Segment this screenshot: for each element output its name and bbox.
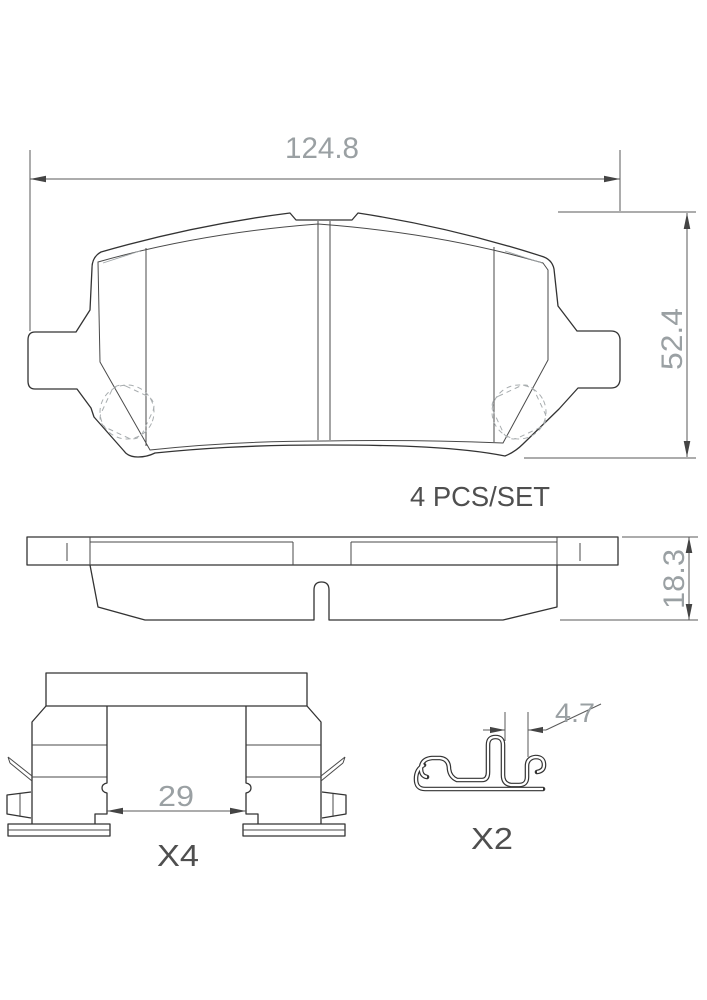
spring-wire-main-outer	[421, 737, 544, 785]
brake-pad-drawing: 124.8 52.4 4 PCS/SET 18.3	[0, 0, 707, 1000]
dimension-thickness: 18.3	[560, 537, 698, 620]
spring-gap-arrow-right	[528, 727, 543, 733]
dimension-clip-span: 29	[107, 781, 246, 814]
height-arrow-bottom	[684, 441, 691, 457]
pad-side-view	[27, 537, 618, 620]
pad-front-view	[28, 213, 620, 457]
pad-corner-chamfer-marks	[103, 251, 542, 263]
clip-quantity-label: X4	[157, 838, 199, 873]
height-dim-value: 52.4	[656, 308, 689, 370]
width-arrow-left	[30, 176, 46, 183]
clip-span-arrow-right	[230, 808, 246, 815]
width-arrow-right	[604, 176, 620, 183]
retaining-spring-view	[416, 737, 544, 789]
pad-backing-outline	[28, 213, 620, 457]
set-quantity-label: 4 PCS/SET	[410, 481, 550, 512]
spring-quantity-label: X2	[471, 821, 513, 856]
spring-gap-value: 4.7	[555, 698, 595, 728]
clip-span-value: 29	[158, 781, 194, 813]
pad-sensor-mark-left	[91, 376, 163, 448]
clip-right-foot	[322, 792, 346, 818]
side-friction-material	[90, 565, 557, 620]
clip-right-leg-outer	[307, 706, 321, 824]
clip-right-leg-inner	[246, 706, 258, 824]
technical-drawing-page: 124.8 52.4 4 PCS/SET 18.3	[0, 0, 707, 1000]
pad-friction-outline	[98, 224, 548, 450]
clip-left-spring-arm	[8, 757, 32, 781]
clip-left-leg-inner	[95, 706, 107, 824]
clip-left-leg-outer	[32, 706, 46, 824]
clip-right-spring-arm	[321, 757, 345, 781]
clip-left-foot	[7, 792, 31, 818]
clip-span-arrow-left	[107, 808, 123, 815]
height-arrow-top	[684, 213, 691, 229]
dimension-width: 124.8	[30, 132, 620, 331]
width-dim-value: 124.8	[285, 132, 359, 165]
clip-top-bar	[46, 673, 307, 706]
sensor-square-left	[96, 381, 157, 442]
side-backing-plate	[27, 537, 618, 565]
spring-gap-arrow-left	[490, 727, 505, 733]
dimension-height: 52.4	[524, 212, 696, 458]
sensor-square-right	[488, 381, 549, 442]
thickness-dim-value: 18.3	[658, 549, 691, 609]
